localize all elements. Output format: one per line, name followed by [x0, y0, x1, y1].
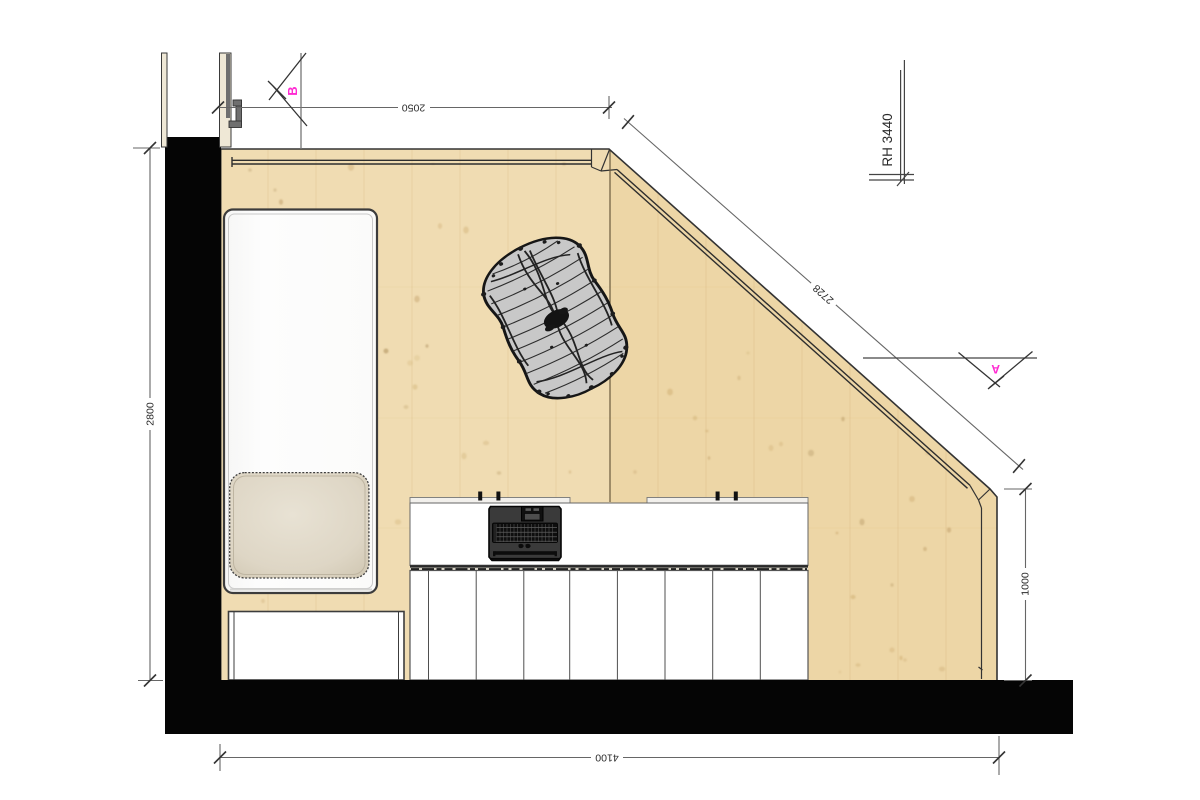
svg-text:1000: 1000 — [1020, 572, 1032, 596]
svg-text:2050: 2050 — [402, 102, 426, 114]
svg-text:B: B — [285, 86, 300, 95]
svg-text:4100: 4100 — [595, 752, 619, 764]
svg-text:2800: 2800 — [145, 402, 157, 426]
svg-text:RH 3440: RH 3440 — [880, 113, 895, 166]
svg-text:A: A — [991, 362, 1000, 376]
